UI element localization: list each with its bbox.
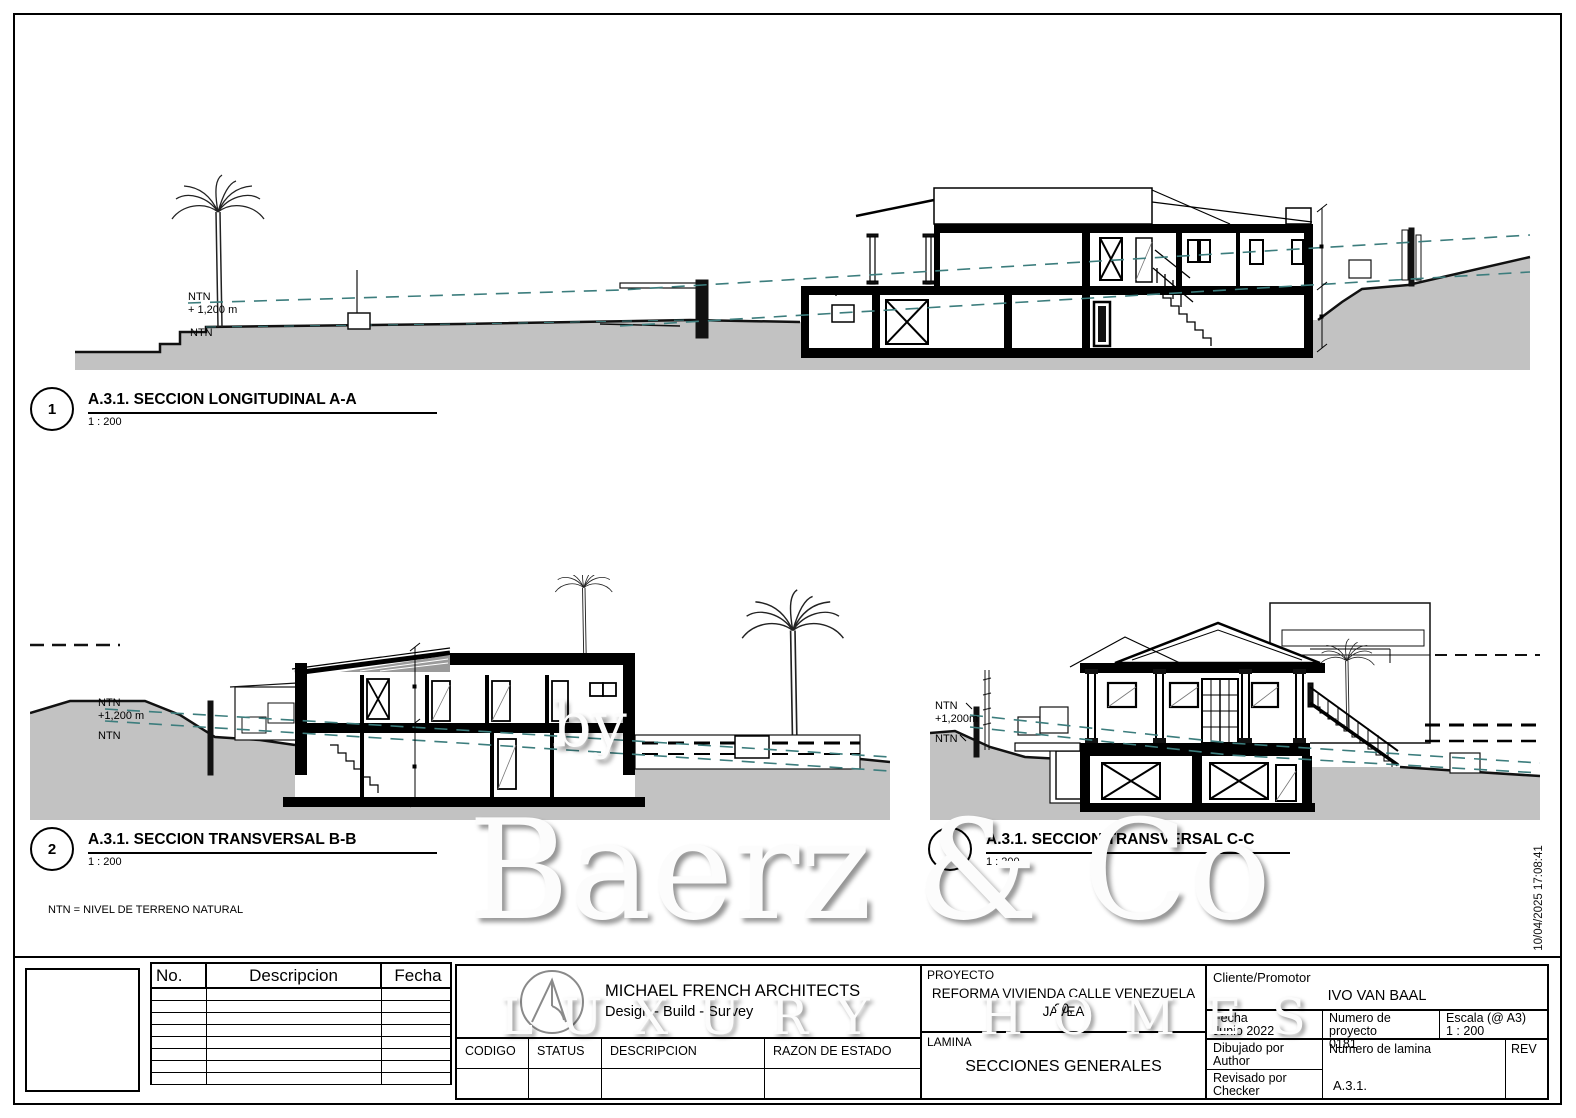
status-col-status: STATUS bbox=[529, 1039, 602, 1098]
client-label: Cliente/Promotor bbox=[1213, 970, 1311, 985]
revision-row bbox=[150, 989, 452, 1001]
view-title-2-name: A.3.1. SECCION TRANSVERSAL B-B bbox=[88, 831, 437, 854]
view-number-2: 2 bbox=[30, 827, 74, 871]
view-title-1-name: A.3.1. SECCION LONGITUDINAL A-A bbox=[88, 391, 437, 414]
sheet-title: SECCIONES GENERALES bbox=[922, 1058, 1205, 1076]
revision-row bbox=[150, 1037, 452, 1049]
svg-text:NTN: NTN bbox=[98, 697, 121, 709]
title-block: No. Descripcion Fecha MICHAEL FRENCH ARC… bbox=[15, 956, 1562, 1105]
ntn-legend-note: NTN = NIVEL DE TERRENO NATURAL bbox=[48, 904, 243, 916]
upper-windows bbox=[1108, 683, 1278, 707]
sheet-number-cell: Numero de lamina A.3.1. bbox=[1323, 1040, 1505, 1098]
view-title-1-scale: 1 : 200 bbox=[88, 416, 437, 428]
checked-by-value: Checker bbox=[1213, 1085, 1322, 1098]
rev-label: REV bbox=[1511, 1042, 1547, 1056]
project-block: PROYECTO REFORMA VIVIENDA CALLE VENEZUEL… bbox=[920, 966, 1205, 1098]
svg-text:NTN: NTN bbox=[935, 700, 958, 712]
sheet-number-value: A.3.1. bbox=[1333, 1078, 1367, 1093]
rev-col-no: No. bbox=[152, 964, 207, 987]
scale-value: 1 : 200 bbox=[1446, 1025, 1545, 1038]
right-deck bbox=[635, 735, 860, 769]
scale-cell: Escala (@ A3) 1 : 200 bbox=[1440, 1011, 1545, 1038]
project-number-cell: Numero de proyecto 0181 bbox=[1323, 1011, 1440, 1038]
svg-text:NTN: NTN bbox=[190, 327, 213, 339]
architect-logo-icon bbox=[520, 970, 584, 1034]
architect-tagline: Design - Build - Survey bbox=[605, 1004, 753, 1020]
status-header-row: CODIGO STATUS DESCRIPCION RAZON DE ESTAD… bbox=[457, 1037, 920, 1098]
svg-text:NTN: NTN bbox=[935, 733, 958, 745]
project-label: PROYECTO bbox=[927, 968, 994, 982]
french-door bbox=[1202, 679, 1238, 743]
info-block: Cliente/Promotor IVO VAN BAAL Fecha Juni… bbox=[1205, 966, 1547, 1098]
revision-row bbox=[150, 1073, 452, 1085]
seccion-longitudinal-a-a-drawing: NTN + 1,200 m NTN bbox=[60, 150, 1550, 385]
client-row: Cliente/Promotor IVO VAN BAAL bbox=[1207, 966, 1547, 1011]
seccion-transversal-b-b-drawing: NTN +1,200 m NTN bbox=[30, 575, 890, 820]
architect-name: MICHAEL FRENCH ARCHITECTS bbox=[605, 982, 860, 1001]
view-number-3: 3 bbox=[928, 827, 972, 871]
project-number-label: Numero de proyecto bbox=[1329, 1012, 1439, 1038]
title-block-main: MICHAEL FRENCH ARCHITECTS Design - Build… bbox=[455, 964, 1549, 1100]
view-number-1: 1 bbox=[30, 387, 74, 431]
status-col-descripcion: DESCRIPCION bbox=[602, 1039, 765, 1098]
revision-table: No. Descripcion Fecha bbox=[150, 962, 452, 1095]
meta-row: Fecha Junio 2022 Numero de proyecto 0181… bbox=[1207, 1011, 1547, 1040]
architect-block: MICHAEL FRENCH ARCHITECTS Design - Build… bbox=[457, 966, 920, 1098]
sheet-label: LAMINA bbox=[927, 1035, 972, 1049]
drawn-by-cell: Dibujado por Author bbox=[1207, 1040, 1322, 1070]
view-title-3-name: A.3.1. SECCION TRANSVERSAL C-C bbox=[986, 831, 1290, 854]
rev-col-fecha: Fecha bbox=[382, 964, 454, 987]
rev-cell: REV bbox=[1505, 1040, 1547, 1098]
revision-table-header: No. Descripcion Fecha bbox=[150, 962, 452, 989]
revision-row bbox=[150, 1061, 452, 1073]
svg-text:+1,200m: +1,200m bbox=[935, 713, 978, 725]
building-section bbox=[283, 648, 645, 807]
view-title-3: 3 A.3.1. SECCION TRANSVERSAL C-C 1 : 200 bbox=[928, 827, 1290, 871]
authorship-row: Dibujado por Author Revisado por Checker… bbox=[1207, 1040, 1547, 1098]
client-name: IVO VAN BAAL bbox=[1207, 988, 1547, 1004]
checked-by-cell: Revisado por Checker bbox=[1207, 1070, 1322, 1098]
logo-box bbox=[25, 968, 140, 1092]
building-section bbox=[801, 188, 1313, 358]
revision-row bbox=[150, 1025, 452, 1037]
view-title-2-scale: 1 : 200 bbox=[88, 856, 437, 868]
svg-text:NTN: NTN bbox=[188, 291, 211, 303]
project-name-line2: JAVEA bbox=[922, 1004, 1205, 1019]
sheet-number-label: Numero de lamina bbox=[1329, 1042, 1431, 1056]
view-title-1: 1 A.3.1. SECCION LONGITUDINAL A-A 1 : 20… bbox=[30, 387, 437, 431]
view-title-2: 2 A.3.1. SECCION TRANSVERSAL B-B 1 : 200 bbox=[30, 827, 437, 871]
date-value: Junio 2022 bbox=[1213, 1025, 1322, 1038]
status-col-codigo: CODIGO bbox=[457, 1039, 529, 1098]
drawn-by-value: Author bbox=[1213, 1055, 1322, 1068]
revision-row bbox=[150, 1049, 452, 1061]
seccion-transversal-c-c-drawing: NTN +1,200m NTN bbox=[930, 575, 1540, 820]
date-cell: Fecha Junio 2022 bbox=[1207, 1011, 1323, 1038]
revision-row bbox=[150, 1001, 452, 1013]
svg-text:+ 1,200 m: + 1,200 m bbox=[188, 304, 237, 316]
view-title-3-scale: 1 : 200 bbox=[986, 856, 1290, 868]
rev-col-descripcion: Descripcion bbox=[207, 964, 382, 987]
status-col-razon: RAZON DE ESTADO bbox=[765, 1039, 920, 1098]
revision-row bbox=[150, 1013, 452, 1025]
svg-text:NTN: NTN bbox=[98, 730, 121, 742]
svg-text:+1,200 m: +1,200 m bbox=[98, 710, 144, 722]
